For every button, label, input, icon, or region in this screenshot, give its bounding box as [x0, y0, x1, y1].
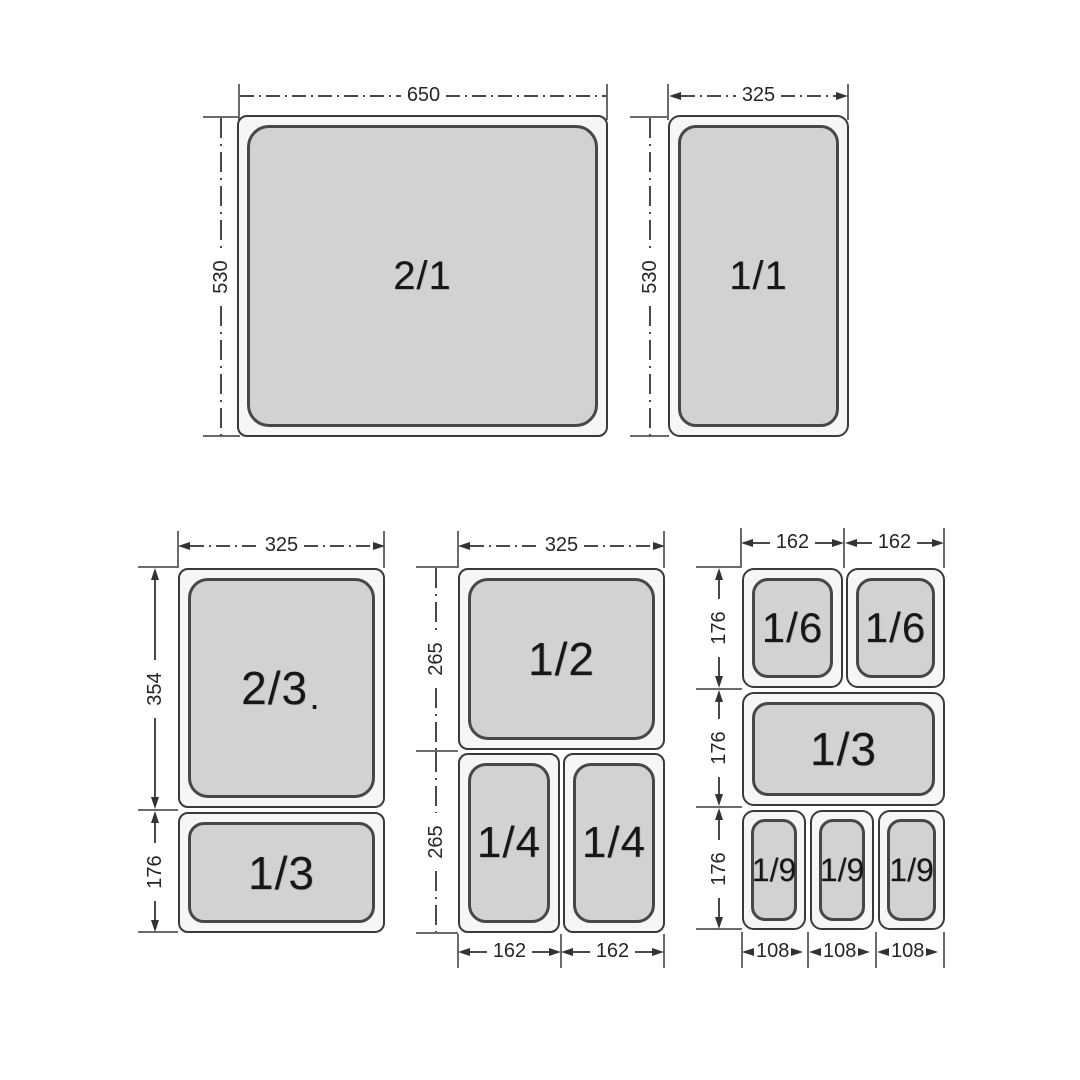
dim-width-group-left: 325 — [178, 538, 385, 554]
pan-1-6-left: 1/6 — [742, 568, 843, 688]
arrow-right-icon — [652, 948, 664, 956]
dim-label: 176 — [711, 599, 727, 657]
arrow-down-icon — [715, 794, 723, 806]
dim-width-pan-1-4-right: 162 — [561, 944, 664, 960]
dim-width-pan-1-4-left: 162 — [458, 944, 561, 960]
dim-label: 176 — [711, 840, 727, 898]
dim-line — [718, 580, 720, 599]
dim-line — [681, 95, 736, 97]
dim-height-pan-2-3: 354 — [147, 568, 163, 809]
dim-line — [154, 823, 156, 843]
dim-height-row-1-6: 176 — [711, 568, 727, 688]
arrow-left-icon — [877, 948, 889, 956]
dim-height-row-1-9: 176 — [711, 808, 727, 929]
dim-line — [635, 951, 652, 953]
dim-width-pan-1-9-b: 108 — [809, 944, 876, 960]
dim-height-row-1-4: 265 — [428, 752, 444, 932]
pan-1-4-left-label: 1/4 — [477, 821, 541, 865]
pan-1-9-a-label: 1/9 — [752, 854, 796, 886]
dim-line — [220, 306, 222, 436]
dim-line — [435, 568, 437, 630]
dim-height-pan-1-1: 530 — [642, 118, 658, 436]
pan-1-2-interior: 1/2 — [468, 578, 655, 740]
pan-1-9-a: 1/9 — [742, 810, 806, 930]
dim-width-col-left: 162 — [741, 535, 844, 551]
arrow-down-icon — [715, 917, 723, 929]
dim-line — [781, 95, 836, 97]
pan-1-1-label: 1/1 — [729, 256, 788, 296]
pan-1-9-c-label: 1/9 — [889, 854, 933, 886]
pan-1-9-a-interior: 1/9 — [751, 819, 797, 921]
pan-2-1-label: 2/1 — [393, 256, 452, 296]
pan-1-9-c: 1/9 — [878, 810, 945, 930]
dim-width-pan-2-1: 650 — [240, 88, 607, 104]
dim-label: 176 — [147, 843, 163, 901]
dim-line — [190, 545, 259, 547]
pan-1-4-right-interior: 1/4 — [573, 763, 655, 923]
pan-2-3-interior: 2/3. — [188, 578, 375, 798]
dim-label: 162 — [590, 941, 635, 961]
arrow-down-icon — [151, 920, 159, 932]
pan-1-4-right: 1/4 — [563, 753, 665, 933]
dim-line — [718, 702, 720, 719]
dim-line — [718, 898, 720, 918]
dim-line — [154, 580, 156, 660]
arrow-left-icon — [561, 948, 573, 956]
dim-line — [154, 718, 156, 798]
dim-line — [718, 777, 720, 794]
dim-line — [435, 871, 437, 932]
dim-line — [718, 820, 720, 840]
arrow-up-icon — [715, 568, 723, 580]
pan-1-4-right-label: 1/4 — [582, 821, 646, 865]
dim-line — [446, 95, 607, 97]
pan-2-1: 2/1 — [237, 115, 608, 437]
arrow-left-icon — [742, 948, 754, 956]
dim-line — [435, 752, 437, 813]
arrow-down-icon — [151, 797, 159, 809]
arrow-left-icon — [458, 542, 470, 550]
pan-1-6-left-interior: 1/6 — [752, 578, 833, 678]
dim-label: 354 — [147, 660, 163, 718]
dim-width-group-mid: 325 — [458, 538, 665, 554]
dim-height-row-1-3: 176 — [711, 690, 727, 806]
dim-line — [435, 688, 437, 750]
dim-width-col-right: 162 — [845, 535, 944, 551]
pan-1-9-b-interior: 1/9 — [819, 819, 865, 921]
label-dot: . — [309, 678, 320, 715]
arrow-right-icon — [926, 948, 938, 956]
arrow-up-icon — [715, 690, 723, 702]
pan-1-4-left: 1/4 — [458, 753, 560, 933]
arrow-down-icon — [715, 676, 723, 688]
arrow-right-icon — [653, 542, 665, 550]
arrow-right-icon — [549, 948, 561, 956]
pan-1-6-right-label: 1/6 — [865, 607, 926, 649]
dim-line — [649, 306, 651, 436]
dim-line — [753, 542, 770, 544]
pan-1-3-right-interior: 1/3 — [752, 702, 935, 796]
dim-line — [154, 901, 156, 921]
arrow-up-icon — [715, 808, 723, 820]
dim-line — [470, 545, 539, 547]
dim-label: 530 — [213, 248, 229, 306]
dim-label: 162 — [872, 532, 917, 552]
dim-line — [220, 118, 222, 248]
pan-2-3: 2/3. — [178, 568, 385, 808]
arrow-right-icon — [858, 948, 870, 956]
dim-label: 530 — [642, 248, 658, 306]
dim-line — [470, 951, 487, 953]
pan-1-6-right-interior: 1/6 — [856, 578, 935, 678]
arrow-left-icon — [741, 539, 753, 547]
pan-2-3-label: 2/3. — [241, 665, 322, 711]
dim-height-pan-1-3-left: 176 — [147, 811, 163, 932]
dim-line — [815, 542, 832, 544]
dim-label: 265 — [428, 630, 444, 688]
dim-label: 325 — [259, 535, 304, 555]
pan-1-9-c-interior: 1/9 — [887, 819, 936, 921]
arrow-left-icon — [458, 948, 470, 956]
pan-1-1-interior: 1/1 — [678, 125, 839, 427]
dim-line — [917, 542, 932, 544]
arrow-left-icon — [845, 539, 857, 547]
pan-1-3-left: 1/3 — [178, 812, 385, 933]
pan-1-6-right: 1/6 — [846, 568, 945, 688]
dim-line — [584, 545, 653, 547]
dim-line — [532, 951, 549, 953]
dim-height-pan-1-2: 265 — [428, 568, 444, 750]
pan-1-3-right: 1/3 — [742, 692, 945, 806]
dim-line — [718, 657, 720, 676]
arrow-up-icon — [151, 568, 159, 580]
arrow-right-icon — [932, 539, 944, 547]
dim-label: 108 — [754, 941, 791, 961]
arrow-left-icon — [669, 92, 681, 100]
dim-line — [240, 95, 401, 97]
dim-line — [304, 545, 373, 547]
dim-label: 650 — [401, 85, 446, 105]
pan-1-3-left-interior: 1/3 — [188, 822, 375, 923]
dim-line — [573, 951, 590, 953]
dim-label: 162 — [487, 941, 532, 961]
arrow-right-icon — [791, 948, 803, 956]
pan-1-3-right-label: 1/3 — [810, 726, 877, 772]
dim-label: 325 — [539, 535, 584, 555]
arrow-left-icon — [809, 948, 821, 956]
dim-line — [857, 542, 872, 544]
arrow-left-icon — [178, 542, 190, 550]
pan-1-6-left-label: 1/6 — [762, 607, 823, 649]
dim-label: 265 — [428, 813, 444, 871]
pan-1-2: 1/2 — [458, 568, 665, 750]
gastronorm-size-diagram: 650 530 2/1 325 530 1/1 3 — [0, 0, 1080, 1080]
pan-1-3-left-label: 1/3 — [248, 850, 315, 896]
pan-1-1: 1/1 — [668, 115, 849, 437]
dim-label: 108 — [821, 941, 858, 961]
arrow-right-icon — [836, 92, 848, 100]
dim-width-pan-1-9-a: 108 — [742, 944, 808, 960]
arrow-up-icon — [151, 811, 159, 823]
extension-line — [416, 932, 458, 934]
dim-width-pan-1-9-c: 108 — [877, 944, 945, 960]
arrow-right-icon — [832, 539, 844, 547]
pan-1-4-left-interior: 1/4 — [468, 763, 550, 923]
dim-label: 325 — [736, 85, 781, 105]
pan-1-9-b: 1/9 — [810, 810, 874, 930]
dim-line — [649, 118, 651, 248]
dim-label: 162 — [770, 532, 815, 552]
dim-label: 108 — [889, 941, 926, 961]
dim-height-pan-2-1: 530 — [213, 118, 229, 436]
dim-width-pan-1-1: 325 — [669, 88, 848, 104]
pan-1-9-b-label: 1/9 — [820, 854, 864, 886]
pan-1-2-label: 1/2 — [528, 636, 595, 682]
pan-2-1-interior: 2/1 — [247, 125, 598, 427]
arrow-right-icon — [373, 542, 385, 550]
dim-label: 176 — [711, 719, 727, 777]
